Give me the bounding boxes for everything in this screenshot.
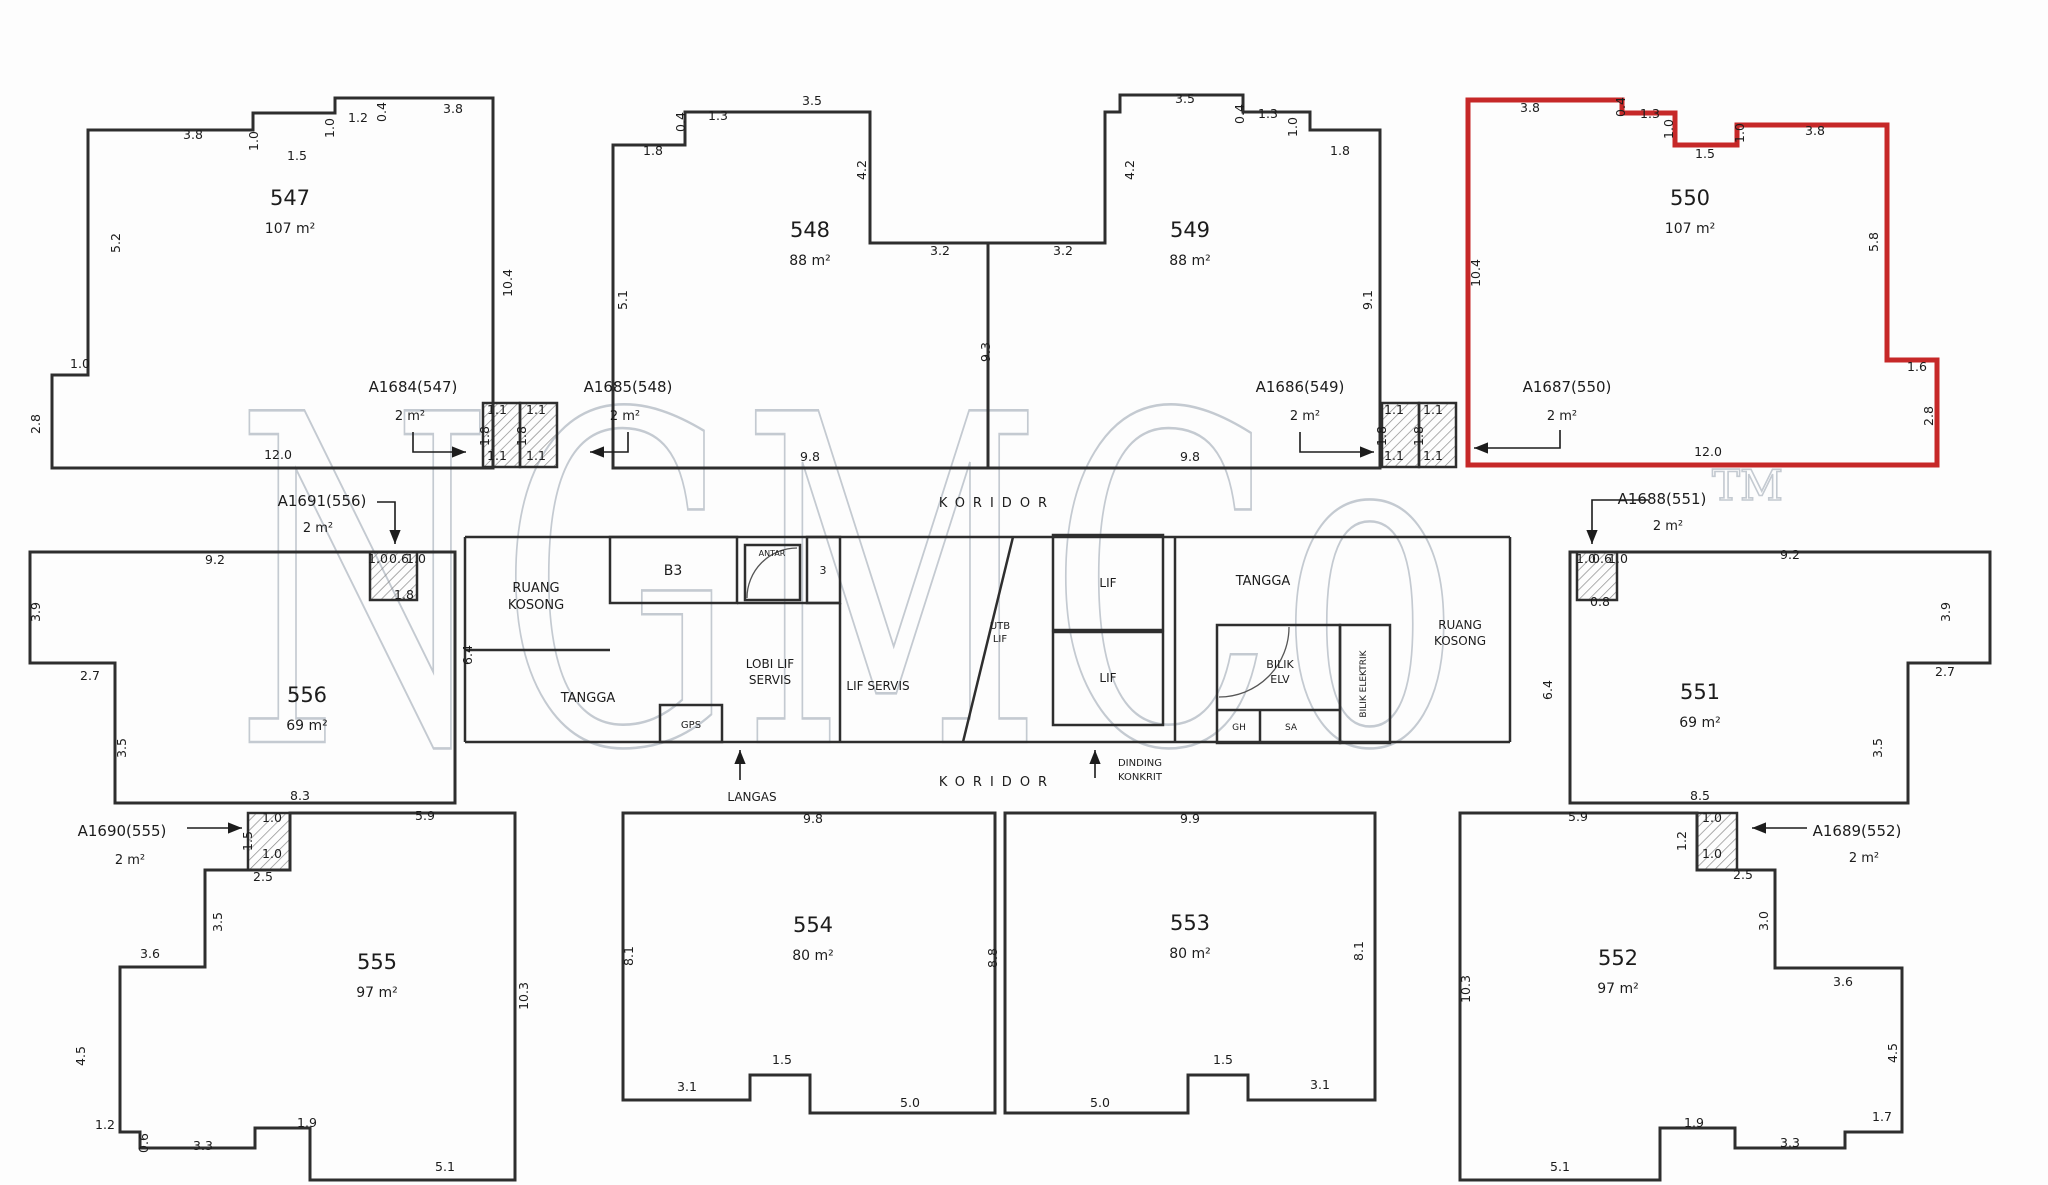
- ref-label-A1688: A1688(551): [1618, 490, 1707, 508]
- room-label: RUANG: [1438, 618, 1482, 632]
- ref-label-A1691-area: 2 m²: [303, 521, 333, 536]
- dimension-label: 1.0: [246, 131, 261, 151]
- dimension-label: 3.0: [1756, 911, 1771, 931]
- dimension-label: 1.8: [1374, 426, 1389, 446]
- dimension-label: 1.0: [1702, 846, 1722, 861]
- dimension-label: 1.3: [1640, 106, 1660, 121]
- dimension-label: 1.3: [708, 108, 728, 123]
- unit-550-number: 550: [1670, 186, 1710, 210]
- dimension-label: 1.1: [526, 402, 546, 417]
- dimension-label: 3.9: [28, 602, 43, 622]
- ref-label-A1689-area: 2 m²: [1849, 851, 1879, 866]
- room-label: TANGGA: [1235, 574, 1291, 589]
- room-label: BILIK ELEKTRIK: [1359, 649, 1369, 717]
- ref-label-A1690-area: 2 m²: [115, 853, 145, 868]
- ref-label-A1684-area: 2 m²: [395, 409, 425, 424]
- dimension-label: 10.3: [1458, 975, 1473, 1003]
- room-label: BILIK: [1266, 658, 1294, 671]
- dimension-label: 5.9: [415, 808, 435, 823]
- unit-556-number: 556: [287, 683, 327, 707]
- unit-553-area: 80 m²: [1169, 946, 1211, 962]
- dimension-label: 1.1: [1423, 448, 1443, 463]
- dimension-label: 1.5: [1695, 146, 1715, 161]
- dimension-label: 3.8: [443, 101, 463, 116]
- room-label: GPS: [681, 720, 701, 731]
- dimension-label: 1.9: [297, 1115, 317, 1130]
- unit-553-number: 553: [1170, 911, 1210, 935]
- room-label: DINDING: [1118, 758, 1162, 769]
- dimension-label: 0.4: [1232, 104, 1247, 124]
- room-label: B3: [664, 563, 683, 579]
- dimension-label: 9.8: [1180, 449, 1200, 464]
- dimension-label: 9.8: [800, 449, 820, 464]
- dimension-label: 9.8: [803, 811, 823, 826]
- unit-551-area: 69 m²: [1679, 715, 1721, 731]
- unit-549-area: 88 m²: [1169, 253, 1211, 269]
- unit-547-area: 107 m²: [265, 221, 315, 237]
- dimension-label: 2.5: [1733, 867, 1753, 882]
- dimension-label: 0.4: [1613, 97, 1628, 117]
- room-label: LIF: [1099, 671, 1116, 685]
- room-label: TANGGA: [560, 691, 616, 706]
- dimension-label: 8.8: [985, 948, 1000, 968]
- dimension-label: 1.8: [394, 587, 414, 602]
- dimension-label: 1.2: [1674, 831, 1689, 851]
- dimension-label: 1.2: [95, 1117, 115, 1132]
- room-label: LIF: [993, 634, 1008, 645]
- dimension-label: 2.8: [28, 414, 43, 434]
- dimension-label: 8.1: [621, 946, 636, 966]
- dimension-label: 1.0: [70, 356, 90, 371]
- dimension-label: 1.2: [348, 110, 368, 125]
- dimension-label: 1.7: [1872, 1109, 1892, 1124]
- unit-555-number: 555: [357, 950, 397, 974]
- dimension-label: 6.4: [1540, 680, 1555, 700]
- dimension-label: 3.3: [1780, 1135, 1800, 1150]
- unit-547-outline[interactable]: [52, 98, 493, 468]
- dimension-label: 10.4: [1468, 259, 1483, 287]
- dimension-label: 2.5: [253, 869, 273, 884]
- dimension-label: 4.2: [1122, 160, 1137, 180]
- unit-555-area: 97 m²: [356, 985, 398, 1001]
- dimension-label: 1.1: [487, 448, 507, 463]
- dimension-label: 2.7: [1935, 664, 1955, 679]
- dimension-label: 1.0: [262, 810, 282, 825]
- dimension-label: 9.2: [1780, 547, 1800, 562]
- dimension-label: 3.5: [1175, 91, 1195, 106]
- dimension-label: 0.4: [374, 102, 389, 122]
- room-label: RUANG: [512, 581, 559, 596]
- dimension-label: 1.0: [1702, 810, 1722, 825]
- dimension-label: 6.4: [460, 645, 475, 665]
- dimension-label: 4.5: [73, 1046, 88, 1066]
- unit-548-number: 548: [790, 218, 830, 242]
- unit-554-area: 80 m²: [792, 948, 834, 964]
- unit-552-area: 97 m²: [1597, 981, 1639, 997]
- dimension-label: 3.5: [210, 912, 225, 932]
- dimension-label: 3.5: [114, 738, 129, 758]
- ref-label-A1685: A1685(548): [584, 378, 673, 396]
- ref-label-A1687-area: 2 m²: [1547, 409, 1577, 424]
- dimension-label: 5.9: [1568, 809, 1588, 824]
- dimension-label: 0.8: [1590, 594, 1610, 609]
- dimension-label: 5.0: [1090, 1095, 1110, 1110]
- floor-plan-page: NGMCoTM547107 m²54888 m²54988 m²550107 m…: [0, 0, 2048, 1185]
- room-label: ANTAR: [759, 549, 786, 558]
- unit-552-number: 552: [1598, 946, 1638, 970]
- room-label: LOBI LIF: [746, 657, 795, 671]
- dimension-label: 1.0: [368, 551, 388, 566]
- dimension-label: 5.2: [108, 233, 123, 253]
- dimension-label: 9.2: [205, 552, 225, 567]
- unit-554-number: 554: [793, 913, 833, 937]
- ref-label-A1687: A1687(550): [1523, 378, 1612, 396]
- dimension-label: 1.0: [322, 118, 337, 138]
- dimension-label: 9.1: [1360, 290, 1375, 310]
- dimension-label: 9.3: [978, 342, 993, 362]
- dimension-label: 8.3: [290, 788, 310, 803]
- room-label: GH: [1232, 723, 1246, 733]
- dimension-label: 1.9: [1684, 1115, 1704, 1130]
- unit-547-number: 547: [270, 186, 310, 210]
- dimension-label: 1.8: [643, 143, 663, 158]
- ref-label-A1685-area: 2 m²: [610, 409, 640, 424]
- room-label: KONKRIT: [1118, 772, 1163, 783]
- room-label: UTB: [990, 621, 1010, 632]
- room-label: KOSONG: [1434, 634, 1486, 648]
- dimension-label: 1.5: [240, 831, 255, 851]
- dimension-label: 2.7: [80, 668, 100, 683]
- floor-plan-svg: NGMCoTM547107 m²54888 m²54988 m²550107 m…: [0, 0, 2048, 1185]
- dimension-label: 3.3: [193, 1138, 213, 1153]
- unit-553-outline[interactable]: [1005, 813, 1375, 1113]
- unit-548-area: 88 m²: [789, 253, 831, 269]
- dimension-label: 3.6: [140, 946, 160, 961]
- dimension-label: 3.2: [930, 243, 950, 258]
- room-label: SERVIS: [749, 673, 791, 687]
- dimension-label: 1.8: [1330, 143, 1350, 158]
- unit-550-area: 107 m²: [1665, 221, 1715, 237]
- room-label: ELV: [1270, 673, 1290, 686]
- dimension-label: 8.1: [1351, 941, 1366, 961]
- unit-549-number: 549: [1170, 218, 1210, 242]
- dimension-label: 1.1: [1384, 448, 1404, 463]
- watermark-tm: TM: [1712, 461, 1783, 510]
- dimension-label: 4.2: [854, 160, 869, 180]
- dimension-label: 1.5: [772, 1052, 792, 1067]
- dimension-label: 3.8: [183, 127, 203, 142]
- ref-label-A1689: A1689(552): [1813, 822, 1902, 840]
- dimension-label: 1.0: [1285, 117, 1300, 137]
- room-label: LIF SERVIS: [846, 679, 909, 693]
- dimension-label: 3.6: [1833, 974, 1853, 989]
- room-label: LANGAS: [727, 790, 776, 804]
- dimension-label: 10.3: [516, 982, 531, 1010]
- dimension-label: 1.8: [477, 426, 492, 446]
- dimension-label: 3.9: [1938, 602, 1953, 622]
- ref-label-A1691: A1691(556): [278, 492, 367, 510]
- dimension-label: 1.6: [1907, 359, 1927, 374]
- dimension-label: 3.8: [1805, 123, 1825, 138]
- dimension-label: 1.3: [1258, 106, 1278, 121]
- dimension-label: 12.0: [264, 447, 292, 462]
- room-label: KORIDOR: [939, 496, 1055, 511]
- dimension-label: 5.0: [900, 1095, 920, 1110]
- dimension-label: 1.1: [526, 448, 546, 463]
- dimension-label: 4.5: [1885, 1043, 1900, 1063]
- dimension-label: 1.1: [1423, 402, 1443, 417]
- dimension-label: 1.0: [262, 846, 282, 861]
- dimension-label: 3.8: [1520, 100, 1540, 115]
- room-label: KOSONG: [508, 598, 564, 613]
- dimension-label: 1.1: [1384, 402, 1404, 417]
- ref-label-A1686-area: 2 m²: [1290, 409, 1320, 424]
- room-label: KORIDOR: [939, 775, 1055, 790]
- dimension-label: 1.8: [514, 426, 529, 446]
- dimension-label: 9.9: [1180, 811, 1200, 826]
- dimension-label: 1.5: [1213, 1052, 1233, 1067]
- dimension-label: 3.1: [677, 1079, 697, 1094]
- ref-label-A1684: A1684(547): [369, 378, 458, 396]
- ref-label-A1686: A1686(549): [1256, 378, 1345, 396]
- dimension-label: 5.1: [1550, 1159, 1570, 1174]
- dimension-label: 0.6: [136, 1133, 151, 1153]
- room-label: LIF: [1099, 576, 1116, 590]
- dimension-label: 8.5: [1690, 788, 1710, 803]
- room-label: SA: [1285, 723, 1298, 733]
- ref-label-A1690: A1690(555): [78, 822, 167, 840]
- ref-label-A1688-area: 2 m²: [1653, 519, 1683, 534]
- dimension-label: 3.5: [1870, 738, 1885, 758]
- dimension-label: 1.0: [406, 551, 426, 566]
- unit-556-area: 69 m²: [286, 718, 328, 734]
- dimension-label: 1.0: [1732, 123, 1747, 143]
- dimension-label: 1.8: [1411, 426, 1426, 446]
- dimension-label: 5.8: [1866, 232, 1881, 252]
- dimension-label: 5.1: [435, 1159, 455, 1174]
- dimension-label: 12.0: [1694, 444, 1722, 459]
- dimension-label: 1.0: [1608, 551, 1628, 566]
- dimension-label: 10.4: [500, 269, 515, 297]
- room-label: 3: [820, 564, 827, 577]
- dimension-label: 3.5: [802, 93, 822, 108]
- unit-551-number: 551: [1680, 680, 1720, 704]
- dimension-label: 0.4: [673, 112, 688, 132]
- dimension-label: 1.1: [487, 402, 507, 417]
- dimension-label: 1.0: [1661, 119, 1676, 139]
- dimension-label: 5.1: [615, 290, 630, 310]
- dimension-label: 3.1: [1310, 1077, 1330, 1092]
- dimension-label: 2.8: [1921, 406, 1936, 426]
- dimension-label: 3.2: [1053, 243, 1073, 258]
- dimension-label: 1.5: [287, 148, 307, 163]
